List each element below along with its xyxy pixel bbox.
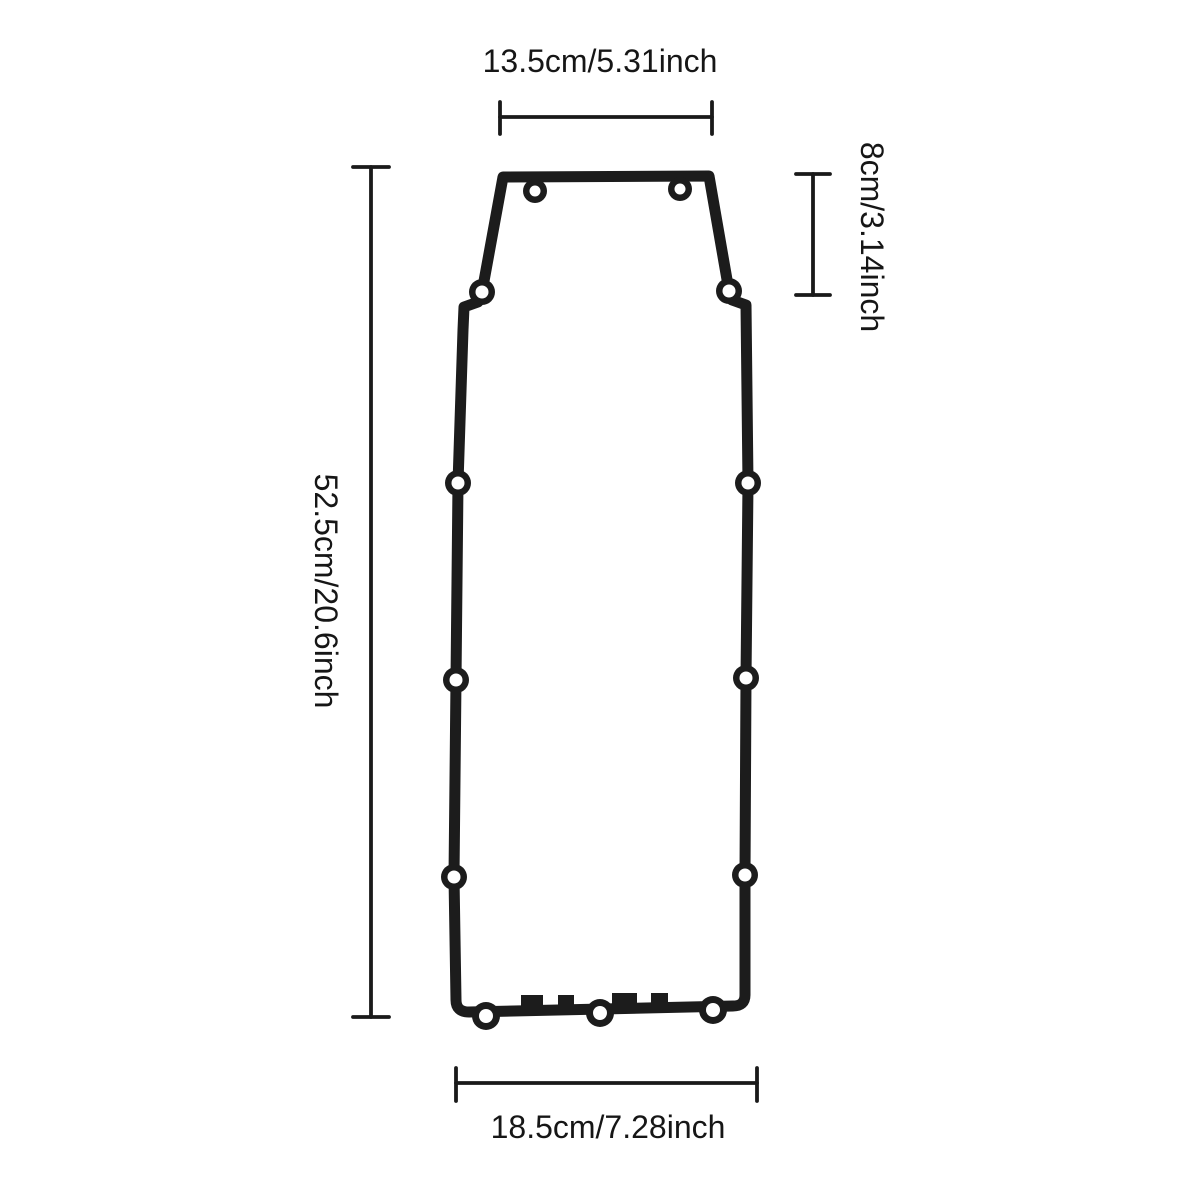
- bolt-hole: [706, 1003, 720, 1017]
- dimension-label-top-width: 13.5cm/5.31inch: [483, 45, 718, 77]
- dimension-line-top-width: [500, 102, 712, 134]
- bolt-hole: [675, 184, 686, 195]
- gasket-outline: [454, 176, 748, 1012]
- dimension-line-overall-height: [353, 167, 389, 1017]
- edge-tab: [612, 993, 637, 1004]
- edge-tab: [651, 993, 668, 1004]
- dimension-label-bottom-width: 18.5cm/7.28inch: [491, 1111, 726, 1143]
- gasket-drawing: [0, 0, 1200, 1200]
- dimension-lines: [353, 102, 830, 1101]
- bolt-hole: [593, 1006, 607, 1020]
- dimension-line-top-section-height: [796, 174, 830, 295]
- bolt-hole-bosses: [441, 177, 761, 1030]
- bolt-hole: [476, 286, 489, 299]
- dimension-label-overall-height: 52.5cm/20.6inch: [310, 474, 342, 709]
- edge-tab: [521, 995, 543, 1006]
- edge-tab: [558, 995, 574, 1006]
- bolt-holes: [448, 184, 755, 1024]
- bolt-hole: [740, 672, 753, 685]
- bolt-hole: [448, 871, 461, 884]
- bolt-hole: [739, 869, 752, 882]
- bolt-hole: [723, 285, 736, 298]
- dimension-label-top-section-height: 8cm/3.14inch: [856, 142, 888, 332]
- gasket-dimension-diagram: 13.5cm/5.31inch 52.5cm/20.6inch 8cm/3.14…: [0, 0, 1200, 1200]
- gasket-outline-path: [454, 176, 748, 1012]
- bolt-hole: [530, 186, 541, 197]
- dimension-line-bottom-width: [456, 1068, 757, 1101]
- bolt-hole: [450, 674, 463, 687]
- bolt-hole: [479, 1009, 493, 1023]
- bolt-hole: [452, 477, 465, 490]
- bolt-hole: [742, 477, 755, 490]
